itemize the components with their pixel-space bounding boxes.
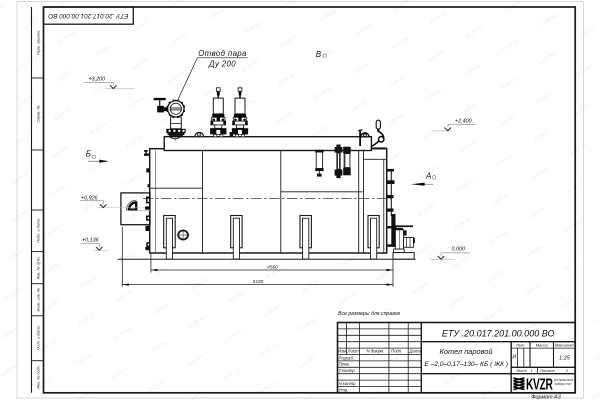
svg-text:Лит.: Лит. <box>515 342 525 347</box>
svg-text:Б: Б <box>86 149 91 158</box>
svg-text:Перв. примен.: Перв. примен. <box>37 30 41 55</box>
svg-text:N докум.: N докум. <box>367 349 384 354</box>
svg-text:1: 1 <box>531 368 533 373</box>
svg-text:И: И <box>513 355 517 361</box>
svg-text:Подп. и дата: Подп. и дата <box>37 219 41 243</box>
svg-text:Все размеры для справок: Все размеры для справок <box>338 311 401 317</box>
svg-text:1:25: 1:25 <box>559 356 571 362</box>
svg-text:ЕТУ .20.017.201.00.000 ВО: ЕТУ .20.017.201.00.000 ВО <box>442 328 555 338</box>
svg-text:Утв.: Утв. <box>339 387 349 392</box>
svg-text:Е –2,0–0,17–130– КБ ( ЖК ): Е –2,0–0,17–130– КБ ( ЖК ) <box>424 361 508 368</box>
svg-text:Пров.: Пров. <box>339 362 350 367</box>
svg-text:Масштаб: Масштаб <box>555 342 574 347</box>
svg-text:А: А <box>425 172 431 181</box>
svg-text:Ду 200: Ду 200 <box>208 59 236 68</box>
svg-text:Лист: Лист <box>347 349 359 354</box>
svg-text:Подп.: Подп. <box>391 349 402 354</box>
svg-text:Лист: Лист <box>516 368 528 373</box>
svg-text:Инв. № подл.: Инв. № подл. <box>37 365 41 389</box>
svg-text:Листов: Листов <box>539 368 555 373</box>
svg-text:4560: 4560 <box>267 265 278 271</box>
svg-text:Отвод пара: Отвод пара <box>198 49 247 58</box>
svg-text:Н.контр.: Н.контр. <box>339 381 357 386</box>
svg-text:Дата: Дата <box>409 349 422 354</box>
svg-text:Разраб.: Разраб. <box>339 355 355 360</box>
svg-text:+3,200: +3,200 <box>89 77 106 83</box>
svg-text:ЗАВОД РЭП: ЗАВОД РЭП <box>554 382 573 386</box>
svg-text:0,000: 0,000 <box>452 247 466 253</box>
svg-text:+0,926: +0,926 <box>81 195 98 201</box>
svg-text:Взам. инв. №: Взам. инв. № <box>37 288 41 311</box>
svg-text:Инв. № дубл.: Инв. № дубл. <box>37 256 41 279</box>
svg-text:+2,400: +2,400 <box>455 119 472 125</box>
svg-text:KVZR: KVZR <box>526 375 553 393</box>
svg-text:Справ. №: Справ. № <box>37 105 41 122</box>
svg-text:5100: 5100 <box>253 279 264 285</box>
svg-text:Т.контр.: Т.контр. <box>339 368 356 373</box>
svg-text:Формат А3: Формат А3 <box>531 395 561 400</box>
svg-text:Изм.: Изм. <box>338 349 347 354</box>
svg-text:В: В <box>316 50 322 59</box>
svg-text:Подп. и дата: Подп. и дата <box>37 326 41 350</box>
svg-text:+0,136: +0,136 <box>82 238 99 244</box>
svg-text:Масса: Масса <box>536 342 549 347</box>
svg-text:Котел паровой: Котел паровой <box>439 347 492 356</box>
svg-text:КОТЕЛЬНЫЙ: КОТЕЛЬНЫЙ <box>554 378 574 382</box>
svg-text:ЕТУ .20.017.201.00.000 ВО: ЕТУ .20.017.201.00.000 ВО <box>48 12 128 19</box>
